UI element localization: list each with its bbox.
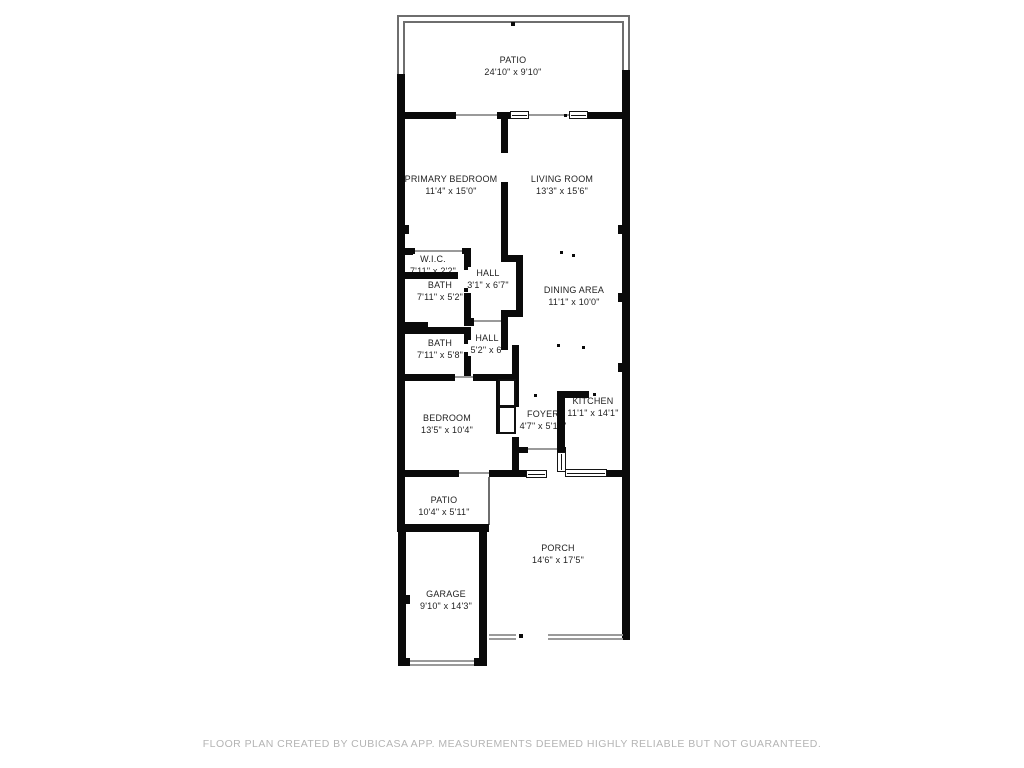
wall-nub: [618, 363, 622, 372]
garage-door-line: [410, 660, 478, 662]
room-label-dining-area: DINING AREA 11'1" x 10'0": [544, 284, 604, 308]
wall-foyer-bottom: [512, 447, 528, 453]
marker-dot: [560, 251, 563, 254]
garage-door-line: [410, 664, 478, 666]
floor-plan-canvas: PATIO 24'10" x 9'10" PRIMARY BEDROOM 11'…: [0, 0, 1024, 768]
room-label-kitchen: KITCHEN 11'1" x 14'1": [567, 395, 618, 419]
marker-dot: [511, 22, 515, 26]
room-name: BEDROOM: [421, 412, 473, 424]
room-name: PORCH: [532, 542, 584, 554]
room-name: HALL: [471, 332, 504, 344]
patio-railing-line: [622, 21, 624, 72]
window-icon: [510, 111, 529, 119]
room-dims: 11'1" x 10'0": [544, 296, 604, 308]
room-label-porch: PORCH 14'6" x 17'5": [532, 542, 584, 566]
wall-segment: [622, 70, 630, 112]
slider-opening: [456, 114, 498, 116]
room-name: PRIMARY BEDROOM: [405, 173, 498, 185]
wall-garage-bottom: [474, 658, 487, 666]
wall-bedroom-living-divider: [501, 112, 508, 153]
marker-dot: [582, 346, 585, 349]
wall-top: [397, 112, 456, 119]
wall-bedroom-bottom: [397, 470, 459, 477]
wall-garage-bottom: [398, 658, 410, 666]
room-name: BATH: [417, 337, 463, 349]
patio-railing-line: [628, 15, 630, 72]
door-opening: [474, 320, 501, 322]
wall-kitchen-left: [557, 391, 565, 453]
room-name: LIVING ROOM: [531, 173, 593, 185]
wall-nub: [618, 293, 622, 302]
wall-bath-right: [464, 327, 471, 340]
room-name: HALL: [467, 267, 509, 279]
door-jamb: [411, 248, 415, 254]
slider-opening: [459, 472, 490, 474]
room-label-living-room: LIVING ROOM 13'3" x 15'6": [531, 173, 593, 197]
room-label-bath-lower: BATH 7'11" x 5'8": [417, 337, 463, 361]
patio-railing-line: [403, 21, 405, 77]
room-dims: 7'11" x 5'8": [417, 349, 463, 361]
marker-dot: [557, 344, 560, 347]
wall-nub: [618, 225, 622, 234]
room-dims: 13'5" x 10'4": [421, 424, 473, 436]
room-dims: 9'10" x 14'3": [420, 600, 472, 612]
room-dims: 11'4" x 15'0": [405, 185, 498, 197]
door-opening: [413, 250, 466, 252]
wall-bath-right: [464, 356, 471, 377]
closet-box: [498, 406, 516, 434]
wall-top: [587, 112, 630, 119]
patio-railing-line: [397, 15, 399, 77]
closet-box: [498, 379, 516, 407]
window-icon: [526, 470, 547, 478]
room-name: BATH: [417, 279, 463, 291]
wall-segment: [397, 74, 405, 112]
room-dims: 3'1" x 6'7": [467, 279, 509, 291]
wall-bedroom-living-divider: [501, 182, 508, 262]
wall-nub: [405, 225, 409, 234]
door-jamb: [464, 266, 468, 270]
room-label-bedroom: BEDROOM 13'5" x 10'4": [421, 412, 473, 436]
marker-dot: [564, 114, 567, 117]
wall-wic-bath-divider: [397, 272, 458, 279]
room-dims: 10'4" x 5'11": [418, 506, 469, 518]
wall-hall-nook: [516, 255, 523, 317]
room-label-hall-lower: HALL 5'2" x 6': [471, 332, 504, 356]
patio-railing-line: [488, 477, 490, 525]
porch-screen-line: [489, 638, 516, 640]
room-label-garage: GARAGE 9'10" x 14'3": [420, 588, 472, 612]
room-name: W.I.C.: [410, 253, 456, 265]
wall-hall-left: [464, 293, 471, 320]
wall-hall-lower: [464, 318, 474, 326]
room-dims: 14'6" x 17'5": [532, 554, 584, 566]
wall-bedroom-top: [397, 374, 455, 381]
wall-bath-divider: [428, 327, 465, 334]
room-name: GARAGE: [420, 588, 472, 600]
room-dims: 24'10" x 9'10": [484, 66, 541, 78]
room-label-bath-upper: BATH 7'11" x 5'2": [417, 279, 463, 303]
room-dims: 5'2" x 6': [471, 344, 504, 356]
slider-opening: [529, 114, 569, 116]
wall-garage-left: [398, 532, 406, 666]
room-label-patio-side: PATIO 10'4" x 5'11": [418, 494, 469, 518]
marker-dot: [442, 527, 446, 531]
wall-hall-nook: [501, 310, 508, 350]
room-label-patio-top: PATIO 24'10" x 9'10": [484, 54, 541, 78]
wall-exterior-right: [622, 112, 630, 640]
porch-screen-line: [548, 638, 623, 640]
room-dims: 7'11" x 5'2": [417, 291, 463, 303]
wall-porch-top: [489, 470, 527, 477]
marker-dot: [593, 393, 596, 396]
room-label-primary-bedroom: PRIMARY BEDROOM 11'4" x 15'0": [405, 173, 498, 197]
room-name: PATIO: [418, 494, 469, 506]
door-jamb: [464, 288, 468, 292]
wall-kitchen-porch: [606, 470, 622, 477]
door-opening: [455, 376, 473, 378]
window-icon: [569, 111, 588, 119]
room-label-hall-upper: HALL 3'1" x 6'7": [467, 267, 509, 291]
room-dims: 11'1" x 14'1": [567, 407, 618, 419]
marker-dot: [534, 394, 537, 397]
door-jamb: [464, 340, 468, 344]
wall-hall-left: [464, 248, 471, 267]
patio-railing-line: [397, 15, 630, 17]
room-name: PATIO: [484, 54, 541, 66]
room-name: DINING AREA: [544, 284, 604, 296]
porch-screen-line: [548, 634, 623, 636]
marker-dot: [519, 634, 523, 638]
room-dims: 13'3" x 15'6": [531, 185, 593, 197]
wall-nub: [406, 595, 410, 604]
entry-door-opening: [528, 448, 557, 450]
wall-bath-divider: [397, 322, 428, 334]
footer-disclaimer: FLOOR PLAN CREATED BY CUBICASA APP. MEAS…: [0, 738, 1024, 750]
wall-garage-right: [479, 524, 487, 666]
window-icon: [565, 469, 607, 477]
porch-screen-line: [489, 634, 516, 636]
marker-dot: [572, 254, 575, 257]
